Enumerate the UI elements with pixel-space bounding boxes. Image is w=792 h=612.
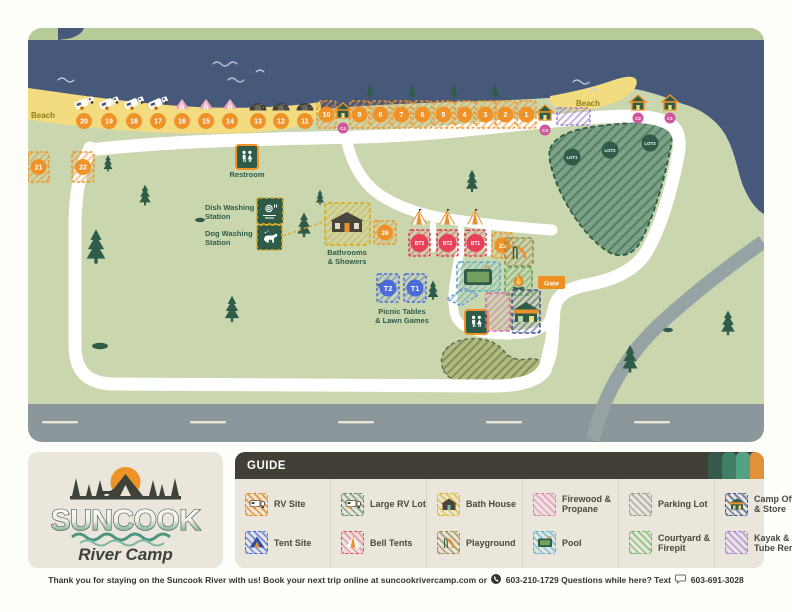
svg-text:14: 14 — [226, 119, 234, 126]
tab-teal — [736, 452, 750, 479]
legend-item-large-rv-lot: Large RV Lot — [341, 493, 426, 516]
kayak-rental-area — [557, 108, 590, 125]
legend-column: RV Site Tent Site — [235, 479, 330, 568]
svg-text:17: 17 — [154, 119, 162, 126]
legend-label: Parking Lot — [658, 499, 714, 509]
pool-icon — [537, 536, 553, 549]
svg-text:LOT3: LOT3 — [645, 141, 657, 146]
svg-text:12: 12 — [277, 119, 285, 126]
legend-column: Bath House Playground — [426, 479, 522, 568]
svg-text:BT2: BT2 — [443, 241, 453, 247]
legend-item-firewood: Firewood & Propane — [533, 493, 618, 516]
svg-text:16: 16 — [178, 119, 186, 126]
svg-text:1: 1 — [525, 112, 529, 119]
beach-label-west: Beach — [31, 111, 55, 120]
legend-item-camp-office: Camp Office & Store — [725, 493, 792, 516]
svg-text:C4: C4 — [340, 126, 346, 131]
camp-office-icon — [729, 498, 745, 511]
svg-text:& Showers: & Showers — [328, 257, 367, 266]
svg-text:BT3: BT3 — [415, 241, 425, 247]
svg-text:Dish Washing: Dish Washing — [205, 203, 255, 212]
svg-text:10: 10 — [323, 112, 331, 119]
footer-text-2: Questions while here? Text — [561, 575, 671, 585]
large-rv-lot-swatch — [341, 493, 364, 516]
rv-icon — [249, 498, 265, 511]
bell-tent-markers: BT3 BT2 BT1 — [409, 209, 486, 256]
svg-text:15: 15 — [202, 119, 210, 126]
svg-text:7: 7 — [400, 112, 404, 119]
playground-swatch — [437, 531, 460, 554]
svg-text:C1: C1 — [667, 116, 673, 121]
guide-legend: RV Site Tent Site Large RV Lot Bell Tent… — [235, 479, 764, 568]
svg-text:22: 22 — [79, 165, 87, 172]
bath-house-icon — [441, 498, 457, 511]
chat-bubble-icon — [675, 574, 686, 584]
pool-icon — [464, 267, 492, 286]
legend-label: Pool — [562, 538, 618, 548]
svg-text:9: 9 — [358, 112, 362, 119]
restroom-south — [465, 310, 488, 334]
tab-green — [722, 452, 736, 479]
legend-item-parking: Parking Lot — [629, 493, 714, 516]
legend-column: Large RV Lot Bell Tents — [330, 479, 426, 568]
svg-text:26: 26 — [381, 230, 389, 237]
legend-item-courtyard: Courtyard & Firepit — [629, 531, 714, 554]
svg-text:& Lawn Games: & Lawn Games — [375, 316, 429, 325]
courtyard-swatch — [629, 531, 652, 554]
guide-header: GUIDE — [235, 452, 764, 479]
svg-text:13: 13 — [254, 119, 262, 126]
bell-tents-swatch — [341, 531, 364, 554]
playground-icon — [441, 536, 457, 549]
svg-text:T1: T1 — [411, 284, 420, 293]
svg-text:Station: Station — [205, 238, 231, 247]
bell-tent-icon — [345, 536, 361, 549]
legend-label: Kayak & Tube Rental — [754, 533, 792, 553]
picnic-label: Picnic Tables — [378, 307, 425, 316]
footer-phone-1: 603-210-1729 — [506, 575, 559, 585]
bath-house: Bathrooms & Showers — [325, 203, 370, 266]
rv-site-swatch — [245, 493, 268, 516]
tent-site-swatch — [245, 531, 268, 554]
svg-text:LOT2: LOT2 — [605, 148, 617, 153]
svg-text:19: 19 — [105, 119, 113, 126]
svg-text:8: 8 — [379, 112, 383, 119]
footer-phone-2: 603-691-3028 — [691, 575, 744, 585]
logo-subtitle: River Camp — [78, 545, 172, 564]
svg-text:Gate: Gate — [544, 281, 559, 288]
svg-text:6: 6 — [421, 112, 425, 119]
svg-text:2: 2 — [504, 112, 508, 119]
pool-area — [457, 262, 500, 291]
legend-column: Camp Office & Store Kayak & Tube Rental — [714, 479, 792, 568]
legend-label: Firewood & Propane — [562, 494, 618, 514]
guide-color-tabs — [708, 452, 764, 479]
svg-text:3: 3 — [484, 112, 488, 119]
svg-text:11: 11 — [301, 119, 309, 126]
rv-icon — [345, 498, 361, 511]
legend-label: Camp Office & Store — [754, 494, 792, 514]
gate-badge: Gate — [538, 276, 565, 289]
pool-swatch — [533, 531, 556, 554]
far-bank — [28, 28, 764, 40]
legend-item-bath-house: Bath House — [437, 493, 522, 516]
svg-text:LOT1: LOT1 — [567, 155, 579, 160]
phone-icon — [491, 574, 501, 584]
legend-label: Playground — [466, 538, 522, 548]
firewood-swatch — [533, 493, 556, 516]
svg-text:5: 5 — [442, 112, 446, 119]
legend-label: RV Site — [274, 499, 330, 509]
legend-column: Parking Lot Courtyard & Firepit — [618, 479, 714, 568]
footer-note: Thank you for staying on the Suncook Riv… — [0, 574, 792, 585]
legend-item-pool: Pool — [533, 531, 618, 554]
svg-text:Restroom: Restroom — [229, 170, 264, 179]
kayak-swatch — [725, 531, 748, 554]
suncook-logo: SUNCOOK River Camp — [28, 452, 223, 568]
guide-panel: GUIDE RV Site Tent Site — [235, 452, 764, 568]
logo-card: SUNCOOK River Camp — [28, 452, 223, 568]
firewood-area — [486, 293, 510, 331]
legend-item-rv-site: RV Site — [245, 493, 330, 516]
svg-text:21: 21 — [35, 165, 43, 172]
svg-text:4: 4 — [463, 112, 467, 119]
legend-label: Tent Site — [274, 538, 330, 548]
tent-icon — [249, 536, 265, 549]
legend-label: Large RV Lot — [370, 499, 426, 509]
map-canvas: Beach Beach 20 19 18 17 16 15 14 13 12 1… — [28, 28, 764, 442]
logo-scene — [70, 467, 181, 500]
guide-title: GUIDE — [235, 460, 286, 472]
svg-text:20: 20 — [80, 119, 88, 126]
svg-text:Dog Washing: Dog Washing — [205, 229, 253, 238]
playground-area — [505, 238, 533, 266]
legend-item-kayak: Kayak & Tube Rental — [725, 531, 792, 554]
tab-orange — [750, 452, 764, 479]
svg-text:Bathrooms: Bathrooms — [327, 248, 367, 257]
campground-map: Beach Beach 20 19 18 17 16 15 14 13 12 1… — [28, 28, 764, 442]
legend-item-playground: Playground — [437, 531, 522, 554]
site-26-marker: 26 — [374, 221, 396, 244]
beach-label-east: Beach — [576, 99, 600, 108]
svg-text:C2: C2 — [635, 116, 641, 121]
legend-label: Bath House — [466, 499, 522, 509]
legend-column: Firewood & Propane Pool — [522, 479, 618, 568]
parking-swatch — [629, 493, 652, 516]
svg-text:Station: Station — [205, 212, 231, 221]
svg-text:BT1: BT1 — [471, 241, 481, 247]
svg-text:18: 18 — [130, 119, 138, 126]
camp-office-swatch — [725, 493, 748, 516]
bath-house-swatch — [437, 493, 460, 516]
svg-text:C3: C3 — [542, 128, 548, 133]
svg-text:T2: T2 — [384, 284, 393, 293]
camp-office-area — [512, 290, 540, 333]
tab-dark-green — [708, 452, 722, 479]
legend-label: Bell Tents — [370, 538, 426, 548]
legend-item-tent-site: Tent Site — [245, 531, 330, 554]
legend-label: Courtyard & Firepit — [658, 533, 714, 553]
footer-text: Thank you for staying on the Suncook Riv… — [48, 575, 487, 585]
legend-item-bell-tents: Bell Tents — [341, 531, 426, 554]
logo-title: SUNCOOK — [51, 504, 202, 537]
